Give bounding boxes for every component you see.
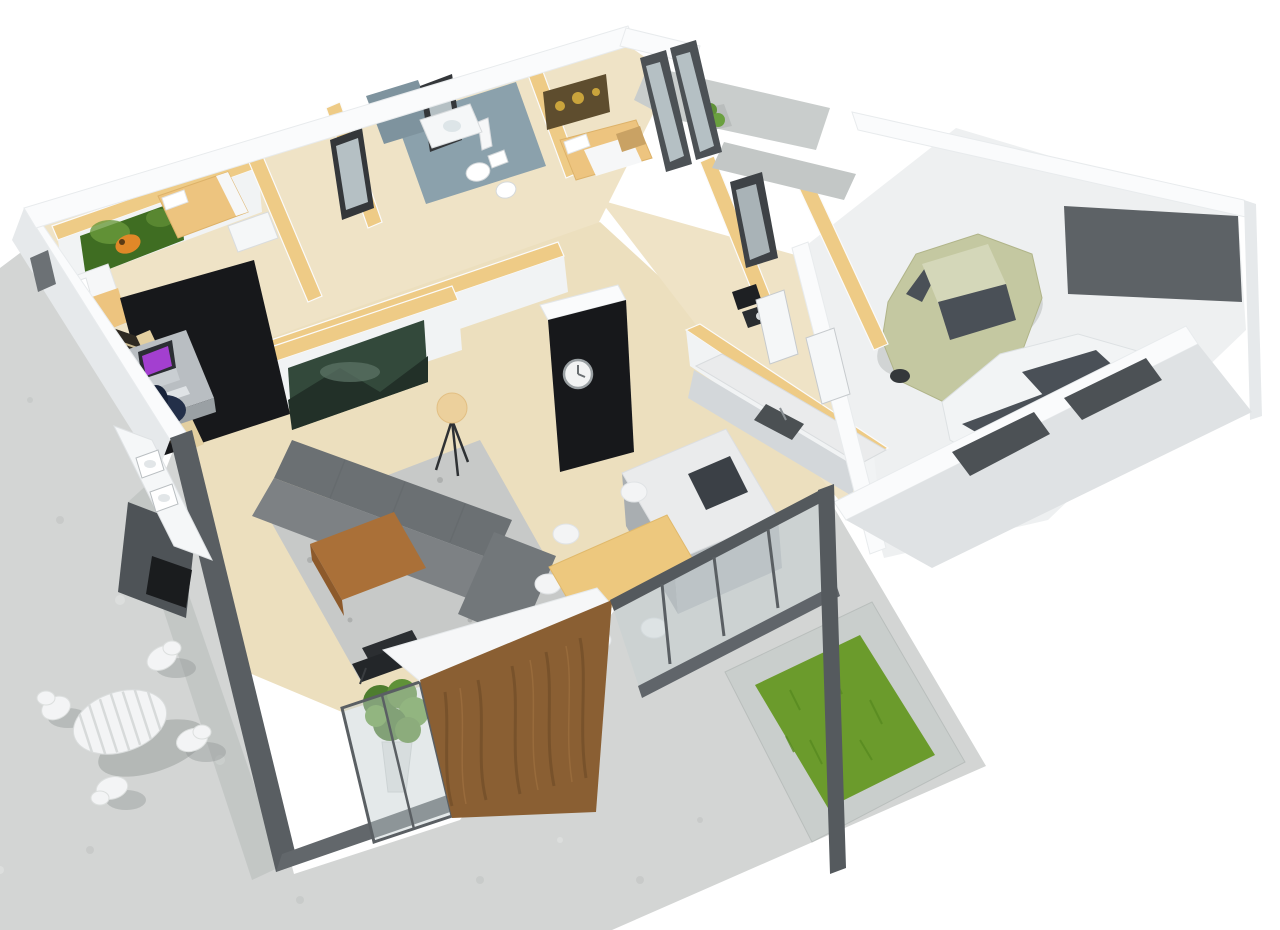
dining-chair: [553, 524, 579, 544]
vanity-basin: [443, 120, 461, 132]
dining-chair: [621, 482, 647, 502]
wall-clock: [564, 360, 592, 388]
garage-east-wall: [1244, 200, 1262, 420]
cube-black-face: [548, 300, 634, 472]
floorplan-canvas: [0, 0, 1280, 930]
garage-wall-dark-band: [1064, 206, 1242, 302]
floorplan-render: [0, 0, 1280, 930]
